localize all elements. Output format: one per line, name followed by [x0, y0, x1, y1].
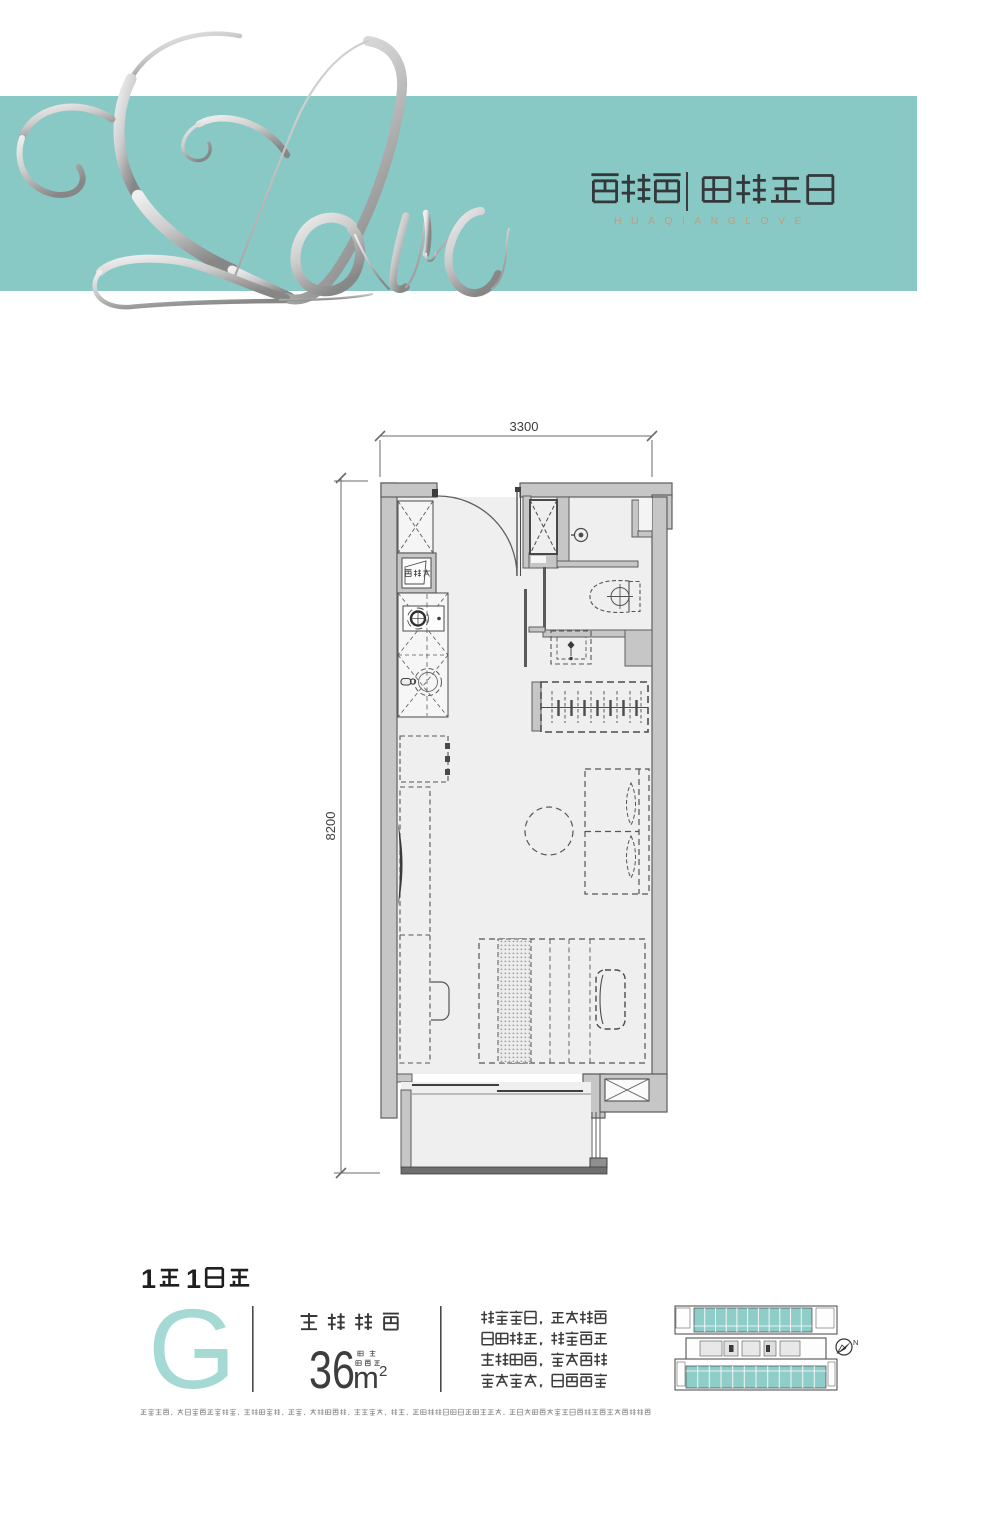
svg-text:8200: 8200 [323, 812, 338, 841]
svg-text:G: G [148, 1286, 236, 1412]
svg-text:3300: 3300 [510, 419, 539, 434]
svg-text:2: 2 [379, 1363, 387, 1380]
svg-text:N: N [853, 1338, 858, 1347]
svg-text:m: m [353, 1360, 379, 1395]
svg-text:36: 36 [309, 1341, 355, 1400]
svg-text:HUAQIANGLOVE: HUAQIANGLOVE [614, 215, 811, 227]
